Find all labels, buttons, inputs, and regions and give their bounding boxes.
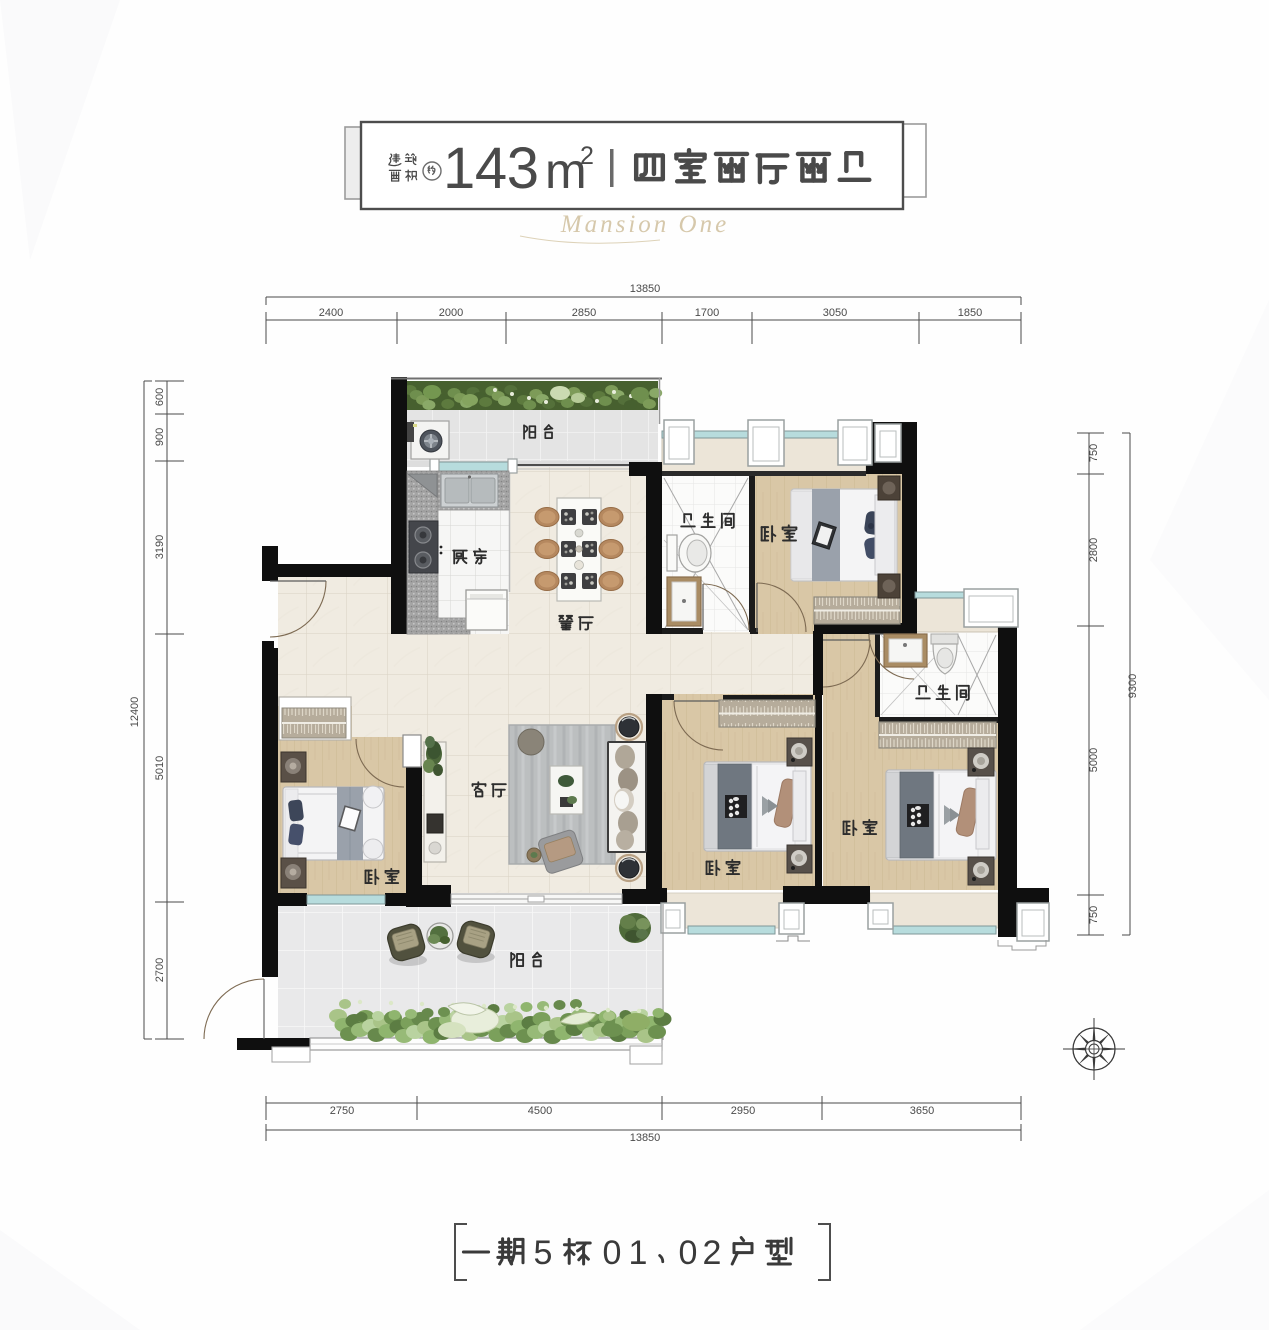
svg-text:2: 2 bbox=[580, 142, 594, 170]
svg-text:13850: 13850 bbox=[630, 1132, 661, 1144]
svg-text:4500: 4500 bbox=[528, 1105, 552, 1117]
svg-text:0: 0 bbox=[603, 1234, 622, 1272]
svg-text:2000: 2000 bbox=[439, 307, 463, 319]
svg-text:1: 1 bbox=[629, 1234, 648, 1272]
svg-text:2400: 2400 bbox=[319, 307, 343, 319]
svg-text:3650: 3650 bbox=[910, 1105, 934, 1117]
svg-text:2750: 2750 bbox=[330, 1105, 354, 1117]
svg-text:750: 750 bbox=[1088, 444, 1100, 462]
svg-text:900: 900 bbox=[154, 428, 166, 446]
svg-text:2: 2 bbox=[703, 1234, 722, 1272]
svg-text:2950: 2950 bbox=[731, 1105, 755, 1117]
svg-text:2700: 2700 bbox=[154, 958, 166, 982]
svg-text:750: 750 bbox=[1088, 906, 1100, 924]
svg-text:5010: 5010 bbox=[154, 756, 166, 780]
svg-text:0: 0 bbox=[679, 1234, 698, 1272]
svg-text:143: 143 bbox=[443, 136, 539, 201]
svg-text:9300: 9300 bbox=[1127, 674, 1139, 698]
svg-text:3050: 3050 bbox=[823, 307, 847, 319]
svg-text:Mansion One: Mansion One bbox=[560, 211, 729, 238]
svg-text:1850: 1850 bbox=[958, 307, 982, 319]
svg-text:2850: 2850 bbox=[572, 307, 596, 319]
svg-text:600: 600 bbox=[154, 388, 166, 406]
svg-text:5000: 5000 bbox=[1088, 748, 1100, 772]
svg-text:3190: 3190 bbox=[154, 535, 166, 559]
svg-text:12400: 12400 bbox=[129, 697, 141, 728]
svg-text:1700: 1700 bbox=[695, 307, 719, 319]
svg-text:2800: 2800 bbox=[1088, 538, 1100, 562]
svg-text:13850: 13850 bbox=[630, 283, 661, 295]
svg-text:5: 5 bbox=[534, 1234, 553, 1272]
